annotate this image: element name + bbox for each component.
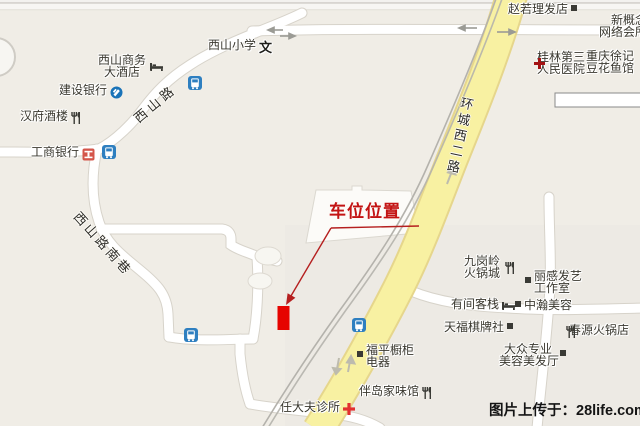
poi-bandao-home-restaurant: 伴岛家味馆: [359, 386, 419, 398]
poi-label-line: 建设银行: [59, 85, 107, 97]
poi-zhaoruo-barbershop: 赵若理发店: [508, 4, 568, 16]
poi-new-concept-internet-club: 新概念网络会所: [599, 15, 640, 38]
dot-icon: [357, 351, 363, 357]
poi-ren-doctor-clinic: 任大夫诊所: [280, 402, 340, 414]
poi-label-line: 任大夫诊所: [280, 402, 340, 414]
dot-icon: [515, 301, 521, 307]
school-icon: 文: [259, 41, 272, 54]
poi-label-line: 电器: [366, 357, 414, 369]
poi-label-line: 工作室: [534, 283, 582, 295]
annotation-parking-location-text: 车位位置: [329, 197, 401, 222]
poi-zhonghan-beauty: 中瀚美容: [524, 300, 572, 312]
poi-xishan-business-hotel: 西山商务大酒店: [97, 55, 147, 78]
poi-label-line: 汉府酒楼: [20, 111, 68, 123]
dot-icon: [560, 350, 566, 356]
poi-xishan-primary-school: 西山小学文: [208, 40, 256, 52]
poi-label-line: 美容美发厅: [499, 356, 557, 368]
poi-label-line: 春源火锅店: [569, 325, 629, 337]
poi-jiugangling-hotpot-city: 九岗岭火锅城: [462, 256, 502, 279]
poi-chongqing-xuji-douhua-fish: 重庆徐记豆花鱼馆: [586, 51, 634, 74]
poi-label-line: 网络会所: [599, 27, 640, 39]
poi-label-line: 工商银行: [31, 147, 79, 159]
blank-cover-box: [555, 93, 640, 107]
poi-label-line: 有间客栈: [451, 299, 499, 311]
poi-ccb-bank: 建设银行: [59, 85, 107, 97]
poi-hanfu-restaurant: 汉府酒楼: [20, 111, 68, 123]
poi-youjian-inn: 有间客栈: [451, 299, 499, 311]
poi-fuping-cabinet-appliance: 福平橱柜电器: [366, 345, 414, 368]
poi-label-line: 天福棋牌社: [444, 322, 504, 334]
map-canvas: 西山路 西山路南巷 环城西二路 西山商务大酒店建设银行汉府酒楼工商银行西山小学文…: [0, 0, 640, 426]
dot-icon: [571, 5, 577, 11]
parking-spot-marker: [278, 306, 290, 330]
road-loop-east: [253, 257, 258, 339]
dot-icon: [525, 277, 531, 283]
poi-ligan-hair-art-studio: 丽感发艺工作室: [534, 271, 582, 294]
road-top-horizontal: [252, 29, 640, 31]
poi-dazhong-beauty-salon: 大众专业美容美发厅: [499, 344, 557, 367]
dot-icon: [507, 323, 513, 329]
poi-label-line: 火锅城: [462, 268, 502, 280]
poi-tianfu-chess-club: 天福棋牌社: [444, 322, 504, 334]
poi-label-line: 豆花鱼馆: [586, 63, 634, 75]
poi-label-line: 伴岛家味馆: [359, 386, 419, 398]
poi-icbc-bank: 工商银行: [31, 147, 79, 159]
poi-label-line: 大酒店: [97, 67, 147, 79]
watermark-text: 图片上传于：28life.com: [489, 399, 640, 420]
poi-label-line: 中瀚美容: [524, 300, 572, 312]
poi-chunyuan-hotpot: 春源火锅店: [569, 325, 629, 337]
poi-label-line: 赵若理发店: [508, 4, 568, 16]
poi-guilin-third-peoples-hospital: 桂林第三人民医院: [537, 52, 585, 75]
poi-label-line: 西山小学: [208, 40, 256, 52]
